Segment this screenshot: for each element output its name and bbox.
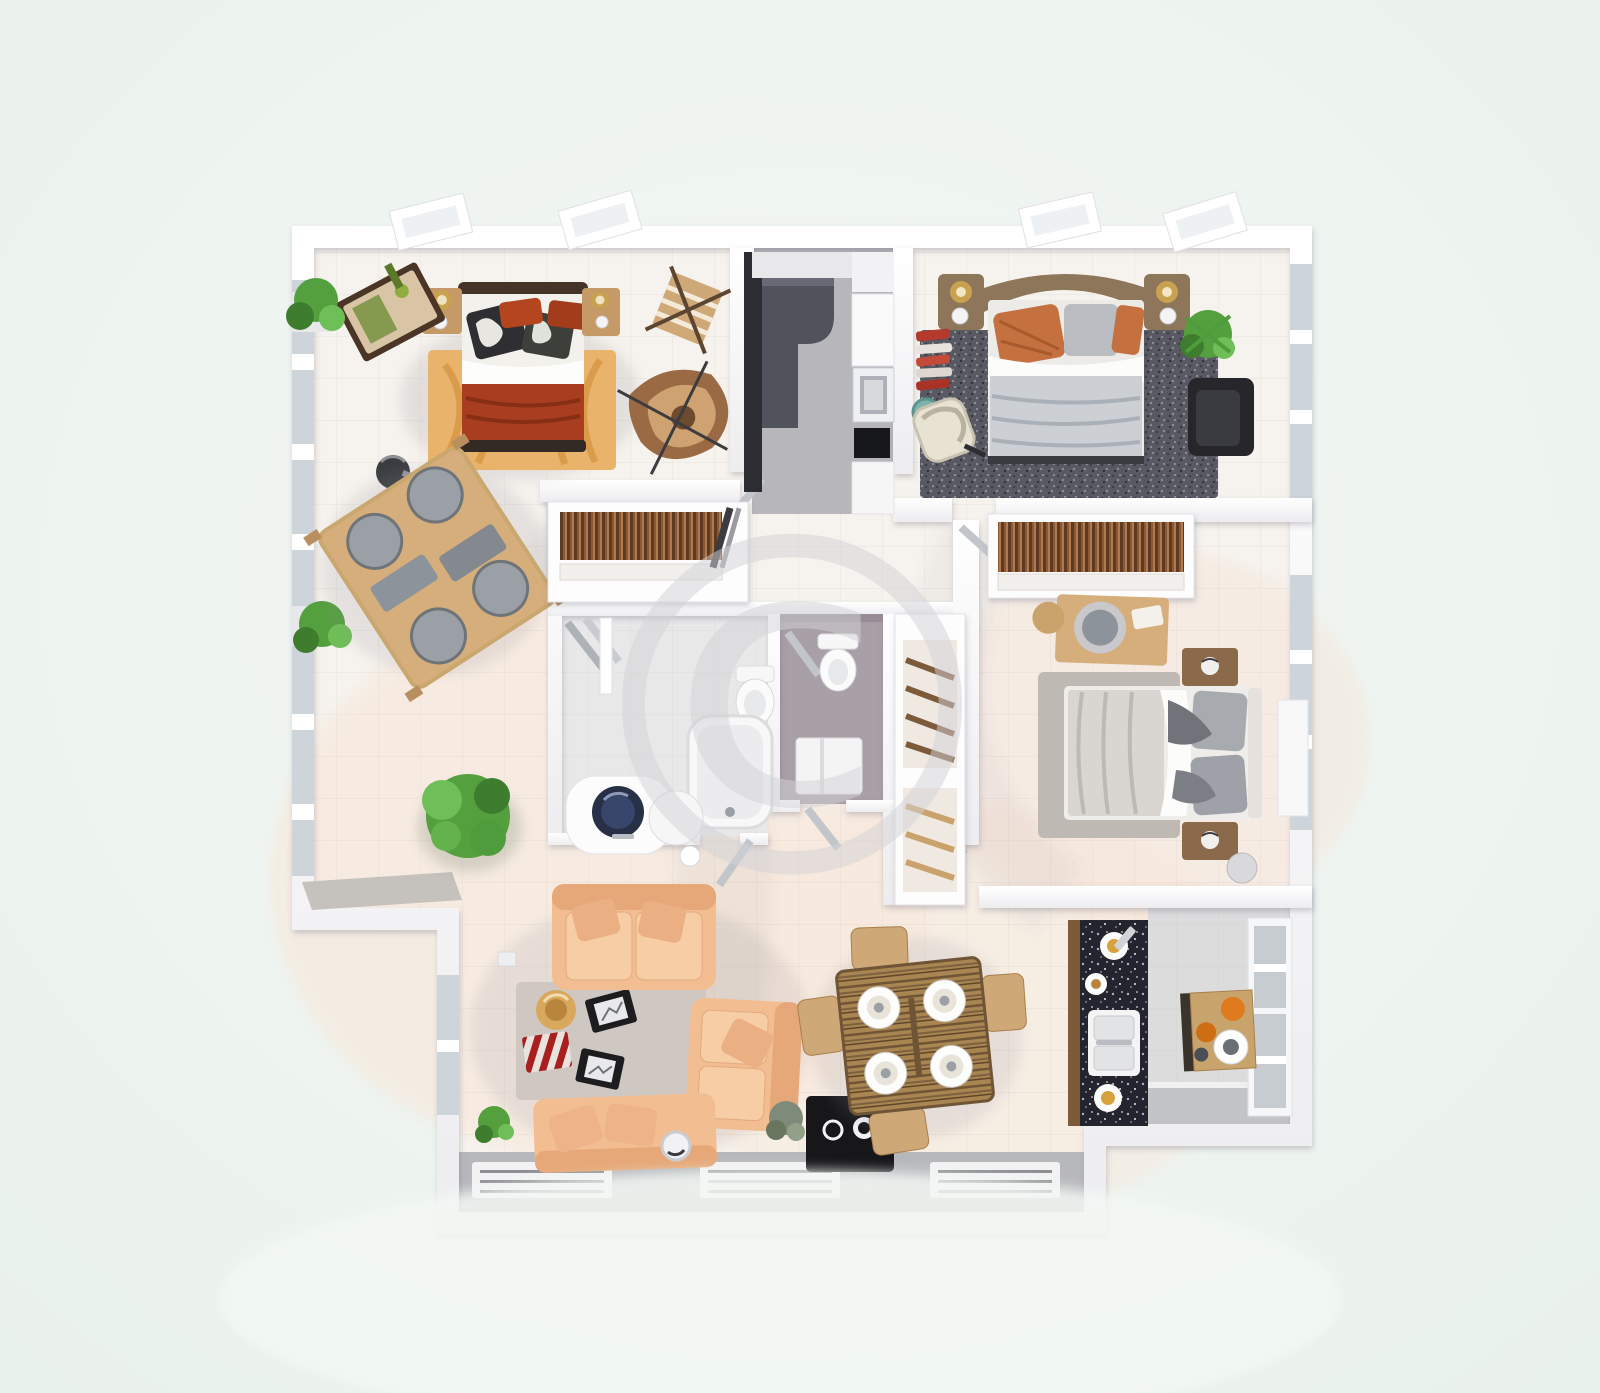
bed-double-red [458, 282, 589, 452]
breakfast-window-wall [1248, 918, 1292, 1116]
robot-vacuum [662, 1132, 690, 1160]
black-armchair [1188, 378, 1254, 456]
sofa-bottom [533, 1093, 717, 1173]
kitchen-oven [853, 368, 894, 422]
nightstand-right [582, 288, 620, 336]
bedroom3-side-cabinet [1278, 700, 1308, 816]
kitchen-upper-band [752, 252, 852, 278]
bedroom3-nightstand-bottom [1182, 822, 1238, 860]
bedroom2-plant [1180, 310, 1235, 359]
notch-window [437, 975, 459, 1115]
breakfast-table [1180, 990, 1256, 1072]
kitchen-counter-run [1068, 920, 1148, 1126]
sink-faucet [1096, 1040, 1132, 1045]
counter-plate-3 [1094, 1084, 1122, 1112]
counter-wood-edge [1068, 920, 1080, 1126]
kitchen-counter-white [852, 294, 894, 366]
floor-plan-stage: © [0, 0, 1600, 1393]
counter-sink [1088, 1010, 1140, 1076]
bedroom3-nightstand-top [1182, 648, 1238, 686]
armchair-cushion [1196, 390, 1240, 446]
potted-tree [418, 774, 522, 872]
copyright-watermark: © [557, 439, 1027, 986]
living-rug [516, 982, 706, 1100]
red-striped-mat [522, 1031, 573, 1073]
wall-bedroom3-bottom [979, 886, 1312, 908]
floor-plan-svg: © [0, 0, 1600, 1393]
sun-hat [536, 990, 576, 1030]
kitchen-fridge [852, 252, 894, 292]
counter-plate-2 [1085, 973, 1107, 995]
clothes-rack [916, 328, 953, 390]
bed-double-right [1064, 686, 1262, 820]
waste-bin [1227, 853, 1257, 883]
sofa-bottom-pillow-2 [603, 1103, 658, 1148]
bed1-blanket [462, 384, 584, 442]
bed3-headboard [1248, 688, 1262, 818]
wall-switch-plate [498, 952, 516, 966]
right-window-bedroom2 [1290, 264, 1312, 502]
left-window-band [292, 280, 314, 876]
bed2-gray-pillow [1064, 304, 1118, 356]
